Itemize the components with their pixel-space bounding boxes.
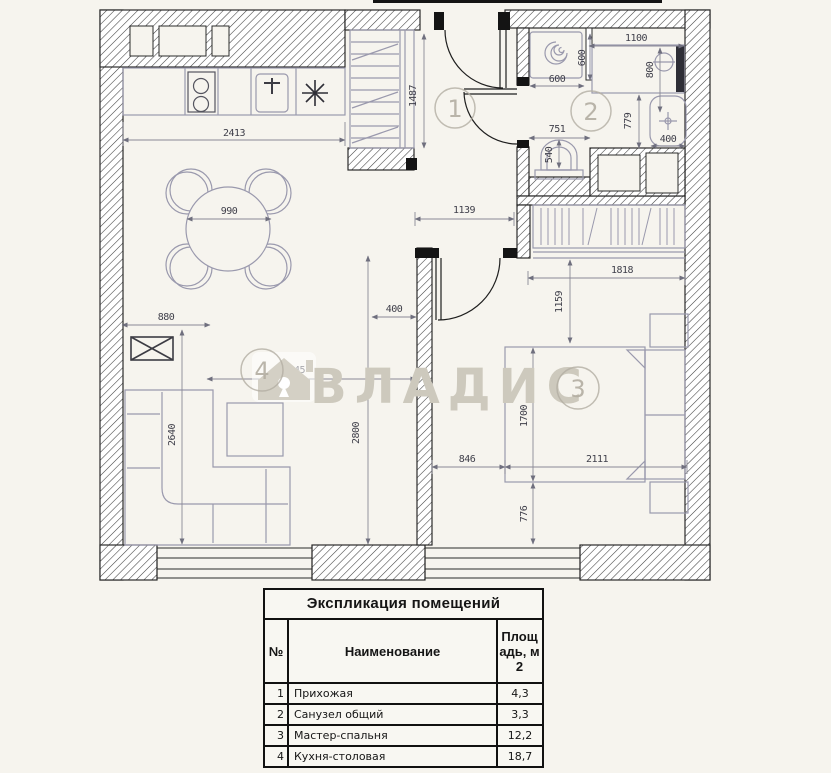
kitchen-sink — [256, 74, 288, 112]
wall-segment — [517, 205, 530, 258]
page-top-rule — [373, 0, 662, 3]
entrance-door — [445, 30, 506, 88]
coffee-table — [227, 403, 283, 456]
legend-row: 3 Мастер-спальня 12,2 — [265, 726, 542, 747]
dim-toilet-depth: 540 — [544, 146, 555, 163]
dim-shower-width: 1100 — [625, 33, 648, 44]
dim-bed-length: 2111 — [586, 454, 609, 465]
towel-radiator — [676, 46, 684, 92]
shaft-niche — [130, 26, 153, 56]
dim-closet-offset: 1159 — [554, 290, 565, 313]
dim-living-length: 2800 — [351, 421, 362, 444]
window — [157, 545, 312, 580]
legend-row-num: 2 — [265, 705, 289, 724]
wall-segment — [312, 545, 425, 580]
sofa — [125, 390, 290, 545]
wall-segment — [100, 545, 157, 580]
legend-row-name: Мастер-спальня — [289, 726, 496, 745]
wall-segment — [685, 10, 710, 580]
wall-segment — [345, 10, 420, 30]
legend-row: 1 Прихожая 4,3 — [265, 684, 542, 705]
legend-title: Экспликация помещений — [265, 590, 542, 620]
wall-segment — [517, 196, 685, 205]
wall-segment — [529, 177, 590, 196]
legend-row-name: Санузел общий — [289, 705, 496, 724]
nightstand — [650, 314, 688, 347]
legend-header-row: № Наименование Площадь, м2 — [265, 620, 542, 684]
legend-row-num: 4 — [265, 747, 289, 766]
bedroom-door — [436, 258, 500, 320]
dim-corridor-width: 1139 — [453, 205, 476, 216]
dining-table — [186, 187, 270, 271]
stove — [188, 72, 215, 112]
dim-sofa-length: 2640 — [167, 423, 178, 446]
shaft-niche — [646, 153, 678, 193]
legend-row-name: Кухня-столовая — [289, 747, 496, 766]
shaft-niche — [159, 26, 206, 56]
dim-bed-bottom-offset: 776 — [519, 505, 530, 522]
hallway-wardrobe — [350, 30, 414, 148]
legend-col-num: № — [265, 620, 289, 682]
legend-row-area: 12,2 — [496, 726, 542, 745]
dim-tv-wall: 880 — [158, 312, 175, 323]
watermark: ВЛАДИС — [252, 352, 590, 415]
dim-shower-depth: 800 — [645, 61, 656, 78]
washing-machine — [530, 32, 582, 78]
room-marker-bathroom: 2 — [583, 98, 598, 126]
nightstand — [650, 482, 688, 513]
brand-watermark-text: ВЛАДИС — [310, 359, 590, 415]
room-marker-hallway: 1 — [447, 95, 462, 123]
legend-row-area: 18,7 — [496, 747, 542, 766]
dim-door-offset: 400 — [386, 304, 403, 315]
wall-segment — [517, 28, 529, 85]
dim-toilet-width: 751 — [549, 124, 566, 135]
legend-row-area: 4,3 — [496, 684, 542, 703]
wall-segment — [505, 10, 710, 28]
dim-sink-width: 400 — [660, 134, 677, 145]
bedroom-closet — [533, 205, 685, 258]
room-marker-bedroom: 3 — [570, 375, 585, 403]
tv-stand — [131, 337, 173, 360]
wall-segment — [580, 545, 710, 580]
furniture — [123, 30, 688, 545]
vent-asterisk-icon — [302, 80, 328, 106]
shower — [592, 45, 684, 93]
dim-sink-height: 779 — [623, 112, 634, 129]
legend-row-area: 3,3 — [496, 705, 542, 724]
dim-table-diameter: 990 — [221, 206, 238, 217]
room-legend-table: Экспликация помещений № Наименование Пло… — [263, 588, 544, 768]
pillow — [627, 461, 645, 479]
room-marker-kitchen: 4 — [254, 357, 269, 385]
dim-closet-width: 1818 — [611, 265, 634, 276]
dim-kitchen-counter: 2413 — [223, 128, 246, 139]
pillow — [627, 350, 645, 368]
kitchen-counter — [123, 68, 345, 115]
washer-spiral-icon — [545, 42, 567, 64]
wall-segment — [348, 148, 414, 170]
legend-col-area: Площадь, м2 — [496, 620, 542, 682]
dim-washer-depth: 600 — [577, 49, 588, 66]
dim-bed-offset: 846 — [459, 454, 476, 465]
shaft-niche — [598, 155, 640, 191]
shaft-niche — [212, 26, 229, 56]
dim-wardrobe-depth: 1487 — [408, 84, 419, 107]
wall-segment — [517, 147, 529, 196]
legend-row-num: 1 — [265, 684, 289, 703]
dim-washer-width: 600 — [549, 74, 566, 85]
legend-row-name: Прихожая — [289, 684, 496, 703]
wall-segment — [100, 10, 123, 580]
legend-row: 4 Кухня-столовая 18,7 — [265, 747, 542, 766]
legend-col-name: Наименование — [289, 620, 496, 682]
doors — [436, 30, 517, 320]
legend-row-num: 3 — [265, 726, 289, 745]
legend-row: 2 Санузел общий 3,3 — [265, 705, 542, 726]
window — [425, 545, 580, 580]
